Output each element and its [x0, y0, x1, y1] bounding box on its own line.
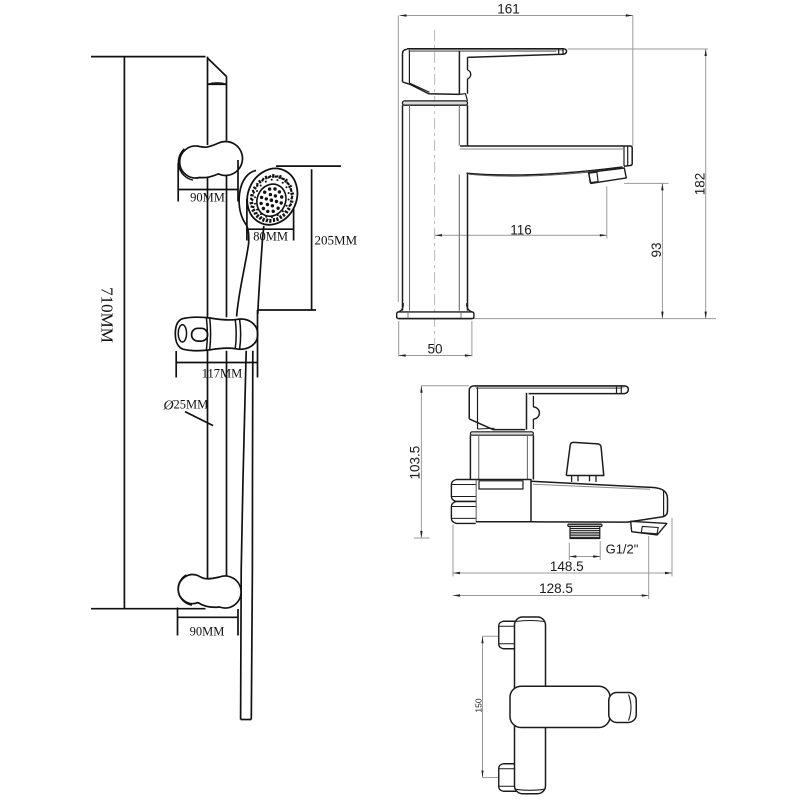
svg-text:93: 93 — [649, 242, 664, 257]
svg-text:128.5: 128.5 — [539, 581, 573, 596]
svg-text:103.5: 103.5 — [408, 446, 423, 480]
svg-text:80MM: 80MM — [253, 230, 288, 244]
svg-text:150: 150 — [473, 698, 483, 712]
svg-text:25MM: 25MM — [174, 398, 209, 412]
svg-text:205MM: 205MM — [315, 233, 358, 248]
svg-text:116: 116 — [510, 223, 532, 238]
svg-text:G1/2": G1/2" — [606, 542, 639, 557]
svg-text:182: 182 — [693, 173, 708, 196]
svg-text:117MM: 117MM — [202, 367, 243, 381]
svg-text:50: 50 — [427, 342, 442, 357]
svg-text:90MM: 90MM — [190, 625, 225, 639]
svg-text:161: 161 — [497, 2, 520, 17]
svg-text:148.5: 148.5 — [550, 559, 584, 574]
svg-text:90MM: 90MM — [190, 191, 225, 205]
svg-text:710MM: 710MM — [98, 287, 117, 343]
